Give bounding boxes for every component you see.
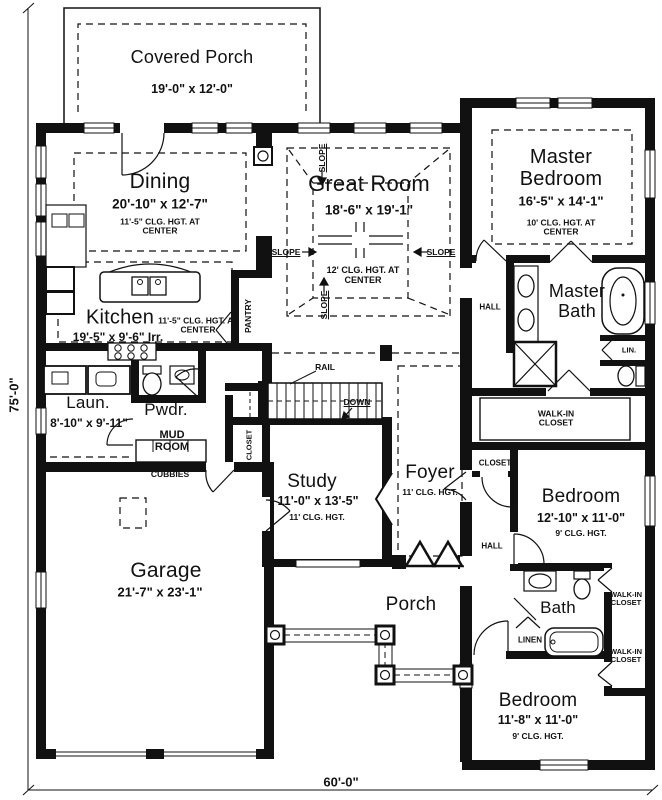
floor-plan-canvas: Covered Porch 19'-0" x 12'-0" Dining 20'…: [0, 0, 662, 800]
room-dims-kitchen: 19'-5" x 9'-6" Irr.: [73, 330, 163, 344]
room-label-porch: Porch: [386, 594, 437, 616]
room-label-bedroom3: Bedroom: [499, 690, 578, 712]
closet-label-study: CLOSET: [245, 430, 254, 460]
room-label-bedroom2: Bedroom: [542, 486, 621, 508]
pantry-label: PANTRY: [243, 299, 253, 333]
room-label-master-bedroom: Master Bedroom: [501, 146, 621, 190]
room-label-great-room: Great Room: [308, 171, 430, 197]
room-label-garage: Garage: [130, 559, 201, 583]
room-note-great-room: 12' CLG. HGT. AT CENTER: [324, 266, 402, 286]
overall-width-dimension: 60'-0": [315, 775, 366, 790]
room-label-study: Study: [287, 471, 337, 493]
slope-label-right: SLOPE: [427, 247, 456, 257]
room-dims-bedroom2: 12'-10" x 11'-0": [537, 511, 625, 525]
overall-depth-dimension: 75'-0": [7, 377, 22, 412]
room-label-covered-porch: Covered Porch: [127, 48, 257, 68]
room-dims-laundry: 8'-10" x 9'-11": [50, 416, 128, 430]
room-note-kitchen: 11'-5" CLG. HGT. AT CENTER: [155, 317, 241, 336]
hall-label-master: HALL: [479, 303, 500, 312]
walk-in-closet-label-master: WALK-IN CLOSET: [527, 410, 585, 429]
walk-in-closet-label-2: WALK-IN CLOSET: [601, 591, 651, 608]
room-dims-bedroom3: 11'-8" x 11'-0": [498, 713, 578, 727]
room-note-foyer: 11' CLG. HGT.: [402, 487, 457, 497]
room-label-dining: Dining: [130, 170, 191, 194]
walk-in-closet-label-3: WALK-IN CLOSET: [601, 648, 651, 665]
cubbies-label: CUBBIES: [151, 469, 189, 479]
room-note-bedroom3: 9' CLG. HGT.: [512, 731, 563, 741]
room-dims-covered-porch: 19'-0" x 12'-0": [151, 82, 233, 96]
room-label-powder: Pwdr.: [144, 400, 188, 420]
closet-label-bedroom2: CLOSET: [479, 459, 511, 468]
room-label-foyer: Foyer: [405, 462, 455, 484]
slope-label-left: SLOPE: [272, 247, 301, 257]
slope-label-bottom: SLOPE: [319, 291, 329, 320]
room-label-mud-room: MUD ROOM: [144, 429, 200, 453]
hall-label-bedrooms: HALL: [481, 542, 502, 551]
room-note-study: 11' CLG. HGT.: [289, 512, 344, 522]
down-label: DOWN: [344, 397, 371, 407]
room-label-master-bath: Master Bath: [534, 282, 620, 322]
room-label-laundry: Laun.: [66, 393, 110, 413]
room-note-bedroom2: 9' CLG. HGT.: [555, 528, 606, 538]
rail-label: RAIL: [315, 362, 335, 372]
room-label-kitchen: Kitchen: [86, 307, 154, 330]
room-note-master-bedroom: 10' CLG. HGT. AT CENTER: [514, 219, 609, 238]
room-dims-garage: 21'-7" x 23'-1": [117, 585, 202, 600]
room-note-dining: 11'-5" CLG. HGT. AT CENTER: [104, 218, 216, 237]
lin-label: LIN.: [622, 346, 636, 355]
room-dims-study: 11'-0" x 13'-5": [277, 494, 358, 508]
room-dims-master-bedroom: 16'-5" x 14'-1": [518, 194, 603, 209]
linen-label: LINEN: [518, 636, 542, 645]
slope-label-top: SLOPE: [317, 144, 327, 173]
room-dims-great-room: 18'-6" x 19'-1": [325, 203, 413, 218]
room-dims-dining: 20'-10" x 12'-7": [112, 197, 208, 212]
room-label-bath2: Bath: [540, 598, 576, 618]
